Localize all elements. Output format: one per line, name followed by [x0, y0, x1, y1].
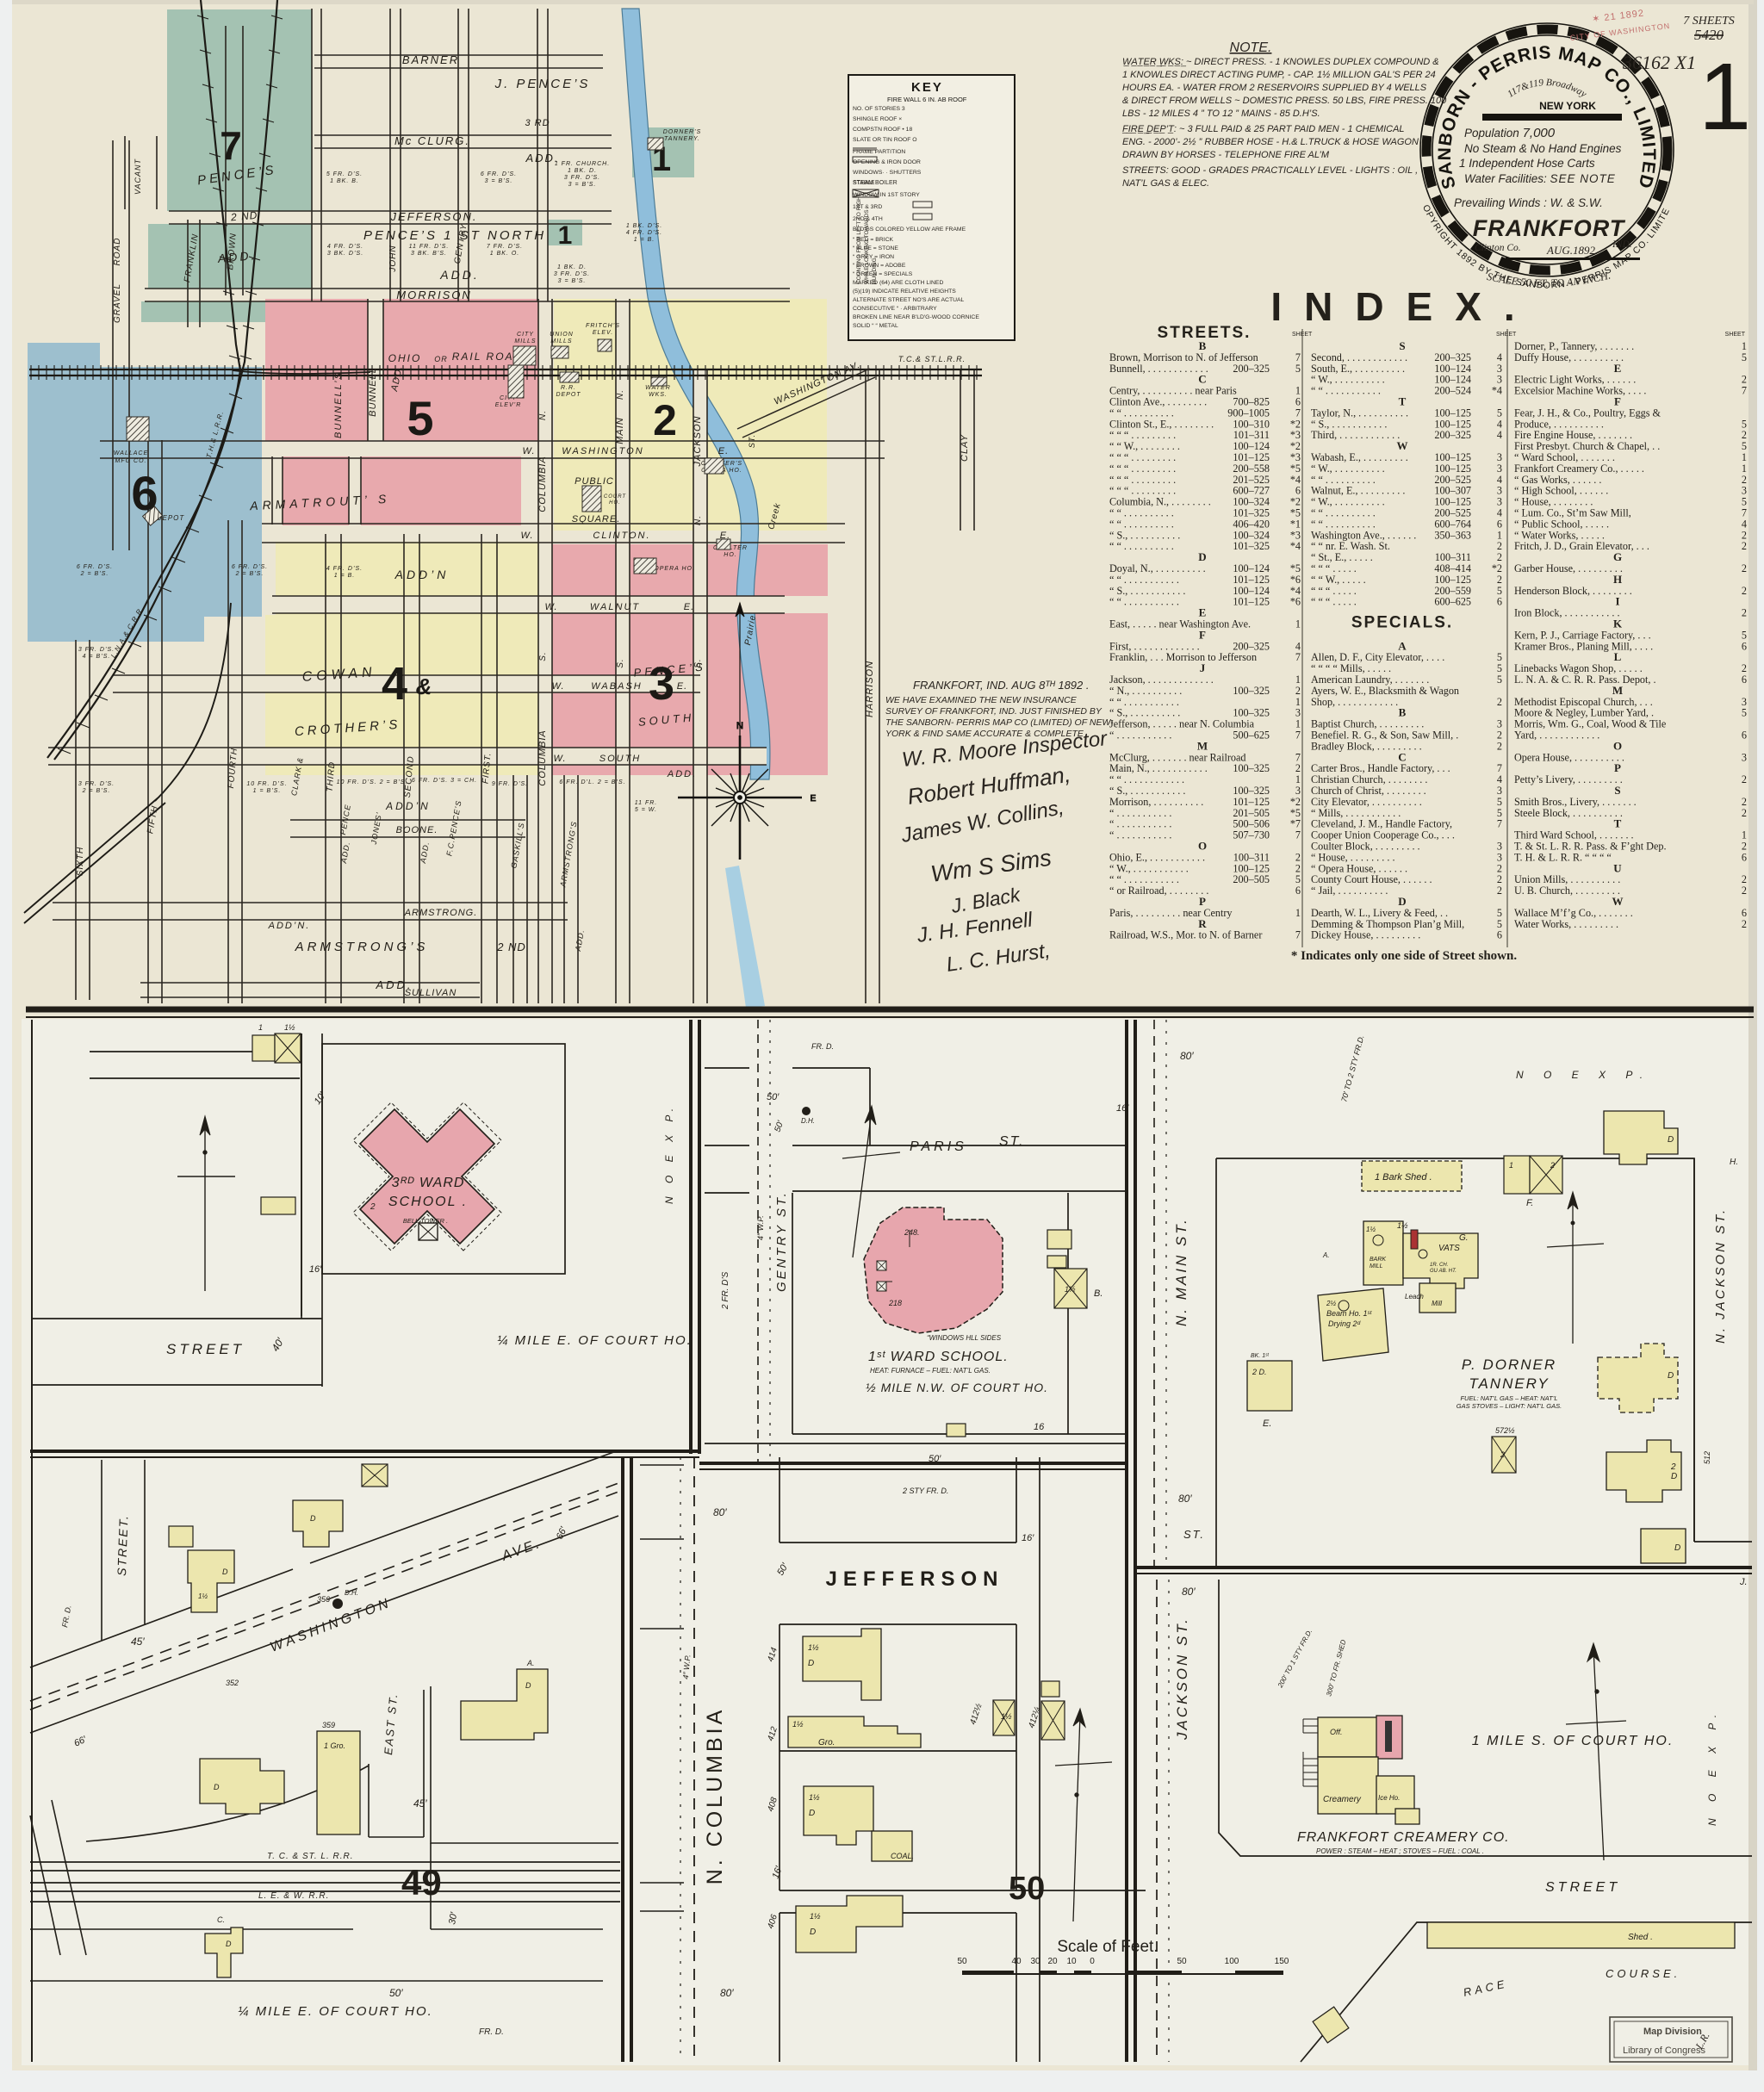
svg-text:“ S., . . . . . . . . . .: “ S., . . . . . . . . . . [1109, 707, 1180, 719]
svg-text:218: 218 [888, 1299, 902, 1307]
svg-text:STEAM BOILER: STEAM BOILER [853, 180, 898, 186]
svg-text:WINDOWS· · SHUTTERS: WINDOWS· · SHUTTERS [853, 170, 922, 176]
svg-text:ROAD: ROAD [113, 238, 122, 266]
svg-text:ADD.: ADD. [439, 268, 479, 282]
svg-text:100–125: 100–125 [1434, 418, 1471, 430]
svg-text:T.C.& ST.L.R.R.: T.C.& ST.L.R.R. [898, 355, 966, 363]
svg-text:E.: E. [684, 602, 694, 612]
svg-text:36162 X1: 36162 X1 [1622, 52, 1696, 73]
svg-text:5: 5 [1497, 907, 1502, 919]
svg-text:4 FR. D’S.: 4 FR. D’S. [626, 230, 662, 236]
svg-text:16: 16 [1034, 1422, 1045, 1432]
svg-text:DRAWN BY HORSES - TELEPHONE FI: DRAWN BY HORSES - TELEPHONE FIRE AL’M [1122, 150, 1330, 160]
svg-text:T: T [1399, 395, 1407, 408]
svg-text:1½: 1½ [808, 1643, 819, 1652]
svg-text:100–124: 100–124 [1233, 585, 1270, 597]
svg-text:1 BK. D.: 1 BK. D. [557, 264, 587, 270]
svg-text:1 Bark Shed .: 1 Bark Shed . [1375, 1172, 1432, 1183]
svg-text:3: 3 [1497, 363, 1502, 375]
svg-text:F.: F. [1526, 1198, 1533, 1208]
svg-text:101–125: 101–125 [1233, 574, 1270, 586]
svg-text:B: B [1199, 339, 1207, 352]
svg-text:VATS: VATS [1438, 1244, 1460, 1253]
svg-text:N. COLUMBIA: N. COLUMBIA [703, 1707, 727, 1885]
svg-text:*2: *2 [1290, 418, 1301, 430]
svg-text:L. N. A. & C. R. R. Pass. Depo: L. N. A. & C. R. R. Pass. Depot, . [1514, 674, 1656, 686]
svg-text:150: 150 [1275, 1957, 1289, 1966]
svg-text:3ᴿᴰ WARD: 3ᴿᴰ WARD [392, 1176, 465, 1190]
svg-text:1: 1 [1295, 385, 1301, 397]
svg-text:D: D [226, 1940, 232, 1948]
svg-text:80′: 80′ [713, 1506, 727, 1518]
svg-text:*2: *2 [1290, 496, 1301, 508]
svg-text:J.: J. [1739, 1577, 1748, 1587]
svg-text:Iron Block, . . . . . . . . .: Iron Block, . . . . . . . . . . . [1514, 607, 1620, 619]
svg-text:3: 3 [1295, 785, 1301, 797]
svg-text:1½: 1½ [1366, 1226, 1376, 1233]
svg-text:WABASH: WABASH [591, 681, 642, 692]
svg-text:Map Division: Map Division [1643, 2027, 1702, 2037]
svg-text:“ “ . . . . . . . . . . .: “ “ . . . . . . . . . . . [1109, 696, 1179, 708]
svg-text:*3: *3 [1290, 429, 1301, 441]
svg-text:“ Mills, . . . . . . . . . .: “ Mills, . . . . . . . . . . . [1311, 807, 1401, 819]
svg-text:2: 2 [1742, 873, 1747, 885]
svg-text:Bunnell, . . . . . . . . . . .: Bunnell, . . . . . . . . . . . . [1109, 363, 1208, 375]
svg-text:U. B. Church, . . . . . . . .: U. B. Church, . . . . . . . . . [1514, 885, 1620, 897]
svg-text:2: 2 [1742, 885, 1747, 897]
svg-text:“ Water Works, . . . . .: “ Water Works, . . . . . [1514, 529, 1605, 541]
svg-text:&: & [416, 674, 432, 699]
svg-text:Yard, . . . . . . . . . . . .: Yard, . . . . . . . . . . . . [1514, 729, 1599, 742]
svg-text:2: 2 [1742, 585, 1747, 597]
svg-text:100–125: 100–125 [1434, 451, 1471, 463]
svg-text:7: 7 [1497, 762, 1502, 774]
svg-text:Dearth, W. L., Livery & Feed,: Dearth, W. L., Livery & Feed, . . [1311, 907, 1448, 919]
svg-text:200–558: 200–558 [1233, 462, 1270, 475]
svg-text:N.: N. [538, 410, 548, 420]
svg-text:2: 2 [1742, 429, 1747, 441]
svg-text:1: 1 [558, 221, 573, 250]
svg-text:MORRISON: MORRISON [396, 289, 472, 301]
svg-text:7: 7 [220, 123, 242, 168]
svg-text:SPECIALS.: SPECIALS. [1351, 614, 1453, 632]
svg-text:101–325: 101–325 [1233, 507, 1270, 519]
svg-text:7: 7 [1295, 351, 1301, 363]
svg-text:1: 1 [258, 1023, 263, 1032]
svg-text:5: 5 [1497, 651, 1502, 663]
svg-text:359: 359 [322, 1721, 335, 1729]
svg-text:N. MAIN ST.: N. MAIN ST. [1173, 1217, 1189, 1326]
svg-text:3: 3 [1742, 696, 1747, 708]
svg-text:100–125: 100–125 [1434, 407, 1471, 419]
svg-text:80′: 80′ [1180, 1050, 1194, 1062]
svg-text:“ S., . . . . . . . . . . .: “ S., . . . . . . . . . . . [1311, 418, 1387, 430]
svg-text:1½: 1½ [198, 1592, 208, 1600]
svg-text:Methodist Episcopal Church, .: Methodist Episcopal Church, . . . [1514, 696, 1653, 708]
svg-text:IND.: IND. [1612, 239, 1632, 250]
svg-text:100–325: 100–325 [1233, 707, 1270, 719]
svg-text:S.: S. [538, 651, 548, 661]
svg-text:Morris, Wm. G., Coal, Wood & T: Morris, Wm. G., Coal, Wood & Tile [1514, 718, 1666, 730]
svg-text:McClurg, . . . . . . . near Ra: McClurg, . . . . . . . near Railroad [1109, 751, 1246, 763]
svg-text:COUNTING FROM LEFT TO RIGHT: COUNTING FROM LEFT TO RIGHT [856, 193, 862, 284]
svg-text:Kern, P. J., Carriage Factory,: Kern, P. J., Carriage Factory, . . . [1514, 629, 1651, 641]
svg-text:2: 2 [1742, 796, 1747, 808]
svg-text:INDEX.: INDEX. [1270, 284, 1537, 329]
svg-text:ARMSTRONG.: ARMSTRONG. [404, 908, 478, 918]
svg-text:5 = W.: 5 = W. [635, 807, 657, 813]
svg-text:E: E [811, 794, 817, 804]
svg-text:SIXTH: SIXTH [76, 847, 85, 876]
svg-text:2: 2 [653, 396, 677, 444]
svg-text:J: J [1200, 661, 1206, 674]
svg-text:3: 3 [1742, 751, 1747, 763]
svg-text:49: 49 [401, 1862, 442, 1903]
svg-text:6: 6 [1742, 640, 1747, 652]
svg-text:1½: 1½ [809, 1793, 820, 1802]
svg-text:*1: *1 [1290, 518, 1301, 530]
svg-text:CLINTON.: CLINTON. [593, 531, 650, 541]
svg-text:“ “ “ . . . . . . . .: “ “ “ . . . . . . . . . [1109, 451, 1176, 463]
svg-text:P: P [1614, 761, 1621, 774]
svg-text:5: 5 [1742, 440, 1747, 452]
svg-text:ADD’N: ADD’N [394, 568, 450, 581]
svg-text:4: 4 [1497, 418, 1502, 430]
svg-text:1 = B’S.: 1 = B’S. [253, 788, 282, 794]
svg-text:P: P [1199, 895, 1206, 908]
svg-text:100–124: 100–124 [1233, 562, 1270, 574]
svg-text:“ Opera House, . . . . . .: “ Opera House, . . . . . . [1311, 862, 1407, 874]
svg-text:4 FR. D’S.: 4 FR. D’S. [326, 566, 363, 572]
svg-text:500–625: 500–625 [1233, 729, 1270, 742]
svg-text:COMPSTN ROOF • 18: COMPSTN ROOF • 18 [853, 127, 912, 133]
svg-text:Leach: Leach [1405, 1293, 1424, 1301]
svg-text:572½: 572½ [1495, 1426, 1515, 1435]
svg-text:“ “ “ . . . . .: “ “ “ . . . . . [1311, 562, 1357, 574]
svg-text:FR. D.: FR. D. [811, 1042, 834, 1051]
svg-text:4: 4 [1497, 429, 1502, 441]
svg-text:“ S., . . . . . . . . . . .: “ S., . . . . . . . . . . . [1109, 585, 1185, 597]
svg-text:1: 1 [1742, 340, 1747, 352]
svg-text:2 FR. D’S: 2 FR. D’S [721, 1271, 730, 1310]
svg-text:2: 2 [1497, 551, 1502, 563]
svg-text:“ “ “ . . . . . . . .: “ “ “ . . . . . . . . . [1109, 474, 1176, 486]
svg-text:3: 3 [1742, 485, 1747, 497]
svg-text:W.: W. [553, 754, 566, 764]
svg-text:ST.: ST. [748, 434, 756, 448]
svg-text:2: 2 [1742, 562, 1747, 574]
svg-text:6 FR. D’L. 2 = B’S.: 6 FR. D’L. 2 = B’S. [559, 779, 625, 785]
svg-text:3: 3 [1497, 841, 1502, 853]
svg-text:“ . . . . . . . . . . .: “ . . . . . . . . . . . [1109, 818, 1171, 830]
svg-text:1R. CH.: 1R. CH. [1430, 1263, 1448, 1268]
svg-text:2 = B’S.: 2 = B’S. [80, 571, 109, 577]
svg-text:Wabash, E., . . . . . . . . .: Wabash, E., . . . . . . . . . [1311, 451, 1408, 463]
svg-text:HARRISON: HARRISON [865, 661, 875, 717]
svg-text:JOHN: JOHN [388, 245, 398, 272]
svg-text:“ “ . . . . . . . . . .: “ “ . . . . . . . . . . [1109, 518, 1174, 530]
svg-text:Church of Christ, . . . . . .: Church of Christ, . . . . . . . . [1311, 785, 1426, 797]
svg-text:Henderson Block, . . . . . . .: Henderson Block, . . . . . . . . [1514, 585, 1632, 597]
svg-text:500–506: 500–506 [1233, 818, 1270, 830]
svg-text:2: 2 [1497, 862, 1502, 874]
svg-text:N O E X P.: N O E X P. [663, 1103, 675, 1204]
svg-text:2: 2 [1742, 773, 1747, 785]
svg-text:COURT: COURT [604, 494, 627, 500]
svg-text:W.: W. [522, 446, 535, 456]
svg-text:ADD’N.: ADD’N. [268, 921, 311, 931]
svg-text:MILLS: MILLS [550, 338, 572, 345]
svg-text:BOONE.: BOONE. [396, 825, 438, 835]
svg-text:5: 5 [1497, 662, 1502, 674]
svg-text:5: 5 [1497, 674, 1502, 686]
svg-text:ELEV.: ELEV. [593, 330, 613, 336]
svg-text:STREET.: STREET. [115, 1514, 130, 1576]
svg-text:AUG.1892.: AUG.1892. [1546, 244, 1598, 257]
svg-text:7: 7 [1295, 729, 1301, 742]
svg-text:T. & St. L. R. R. Pass. & F’gh: T. & St. L. R. R. Pass. & F’ght Dep. [1514, 841, 1667, 853]
svg-text:WALLACE: WALLACE [114, 450, 148, 456]
svg-text:200–525: 200–525 [1434, 507, 1471, 519]
svg-text:“ Ward School, . . . . . . .: “ Ward School, . . . . . . . [1514, 451, 1615, 463]
svg-text:“ N., . . . . . . . . . .: “ N., . . . . . . . . . . [1109, 685, 1182, 697]
svg-text:E.: E. [677, 681, 687, 692]
svg-text:6: 6 [1742, 907, 1747, 919]
svg-text:First Presbyt. Church & Chapel: First Presbyt. Church & Chapel, . . [1514, 440, 1660, 452]
svg-text:2: 2 [370, 1202, 376, 1212]
svg-text:200–525: 200–525 [1434, 474, 1471, 486]
svg-text:100–325: 100–325 [1233, 685, 1270, 697]
svg-text:Steele Block, . . . . . . . .: Steele Block, . . . . . . . . . . [1514, 807, 1623, 819]
svg-text:11 FR.: 11 FR. [635, 800, 658, 806]
svg-text:7: 7 [1295, 751, 1301, 763]
svg-text:A.: A. [526, 1659, 535, 1667]
svg-text:A: A [1398, 639, 1407, 652]
svg-text:O: O [1198, 840, 1207, 853]
svg-text:Cooper Union Cooperage Co., .: Cooper Union Cooperage Co., . . . [1311, 829, 1455, 841]
svg-text:Petty’s Livery, . . . . . . .: Petty’s Livery, . . . . . . . . . [1514, 773, 1623, 785]
svg-text:L: L [1614, 650, 1622, 663]
svg-text:6 FR. D’S.: 6 FR. D’S. [77, 564, 113, 570]
svg-text:40: 40 [1011, 1957, 1022, 1966]
svg-text:“ . . . . . . . . . . .: “ . . . . . . . . . . . [1109, 729, 1171, 742]
svg-text:50′: 50′ [767, 1092, 780, 1102]
svg-text:11 FR. D’S.: 11 FR. D’S. [409, 244, 450, 250]
svg-text:¼ MILE E. OF COURT HO.: ¼ MILE E. OF COURT HO. [238, 2004, 433, 2019]
svg-text:PENCE’S 1 ST NORTH: PENCE’S 1 ST NORTH [363, 228, 546, 243]
svg-text:THE SANBORN- PERRIS MAP CO (LI: THE SANBORN- PERRIS MAP CO (LIMITED) OF … [885, 717, 1114, 728]
svg-text:201–505: 201–505 [1233, 807, 1270, 819]
svg-text:80′: 80′ [720, 1987, 734, 1999]
svg-text:*6: *6 [1290, 596, 1301, 608]
svg-text:512: 512 [1703, 1451, 1711, 1464]
svg-text:“ “ . . . . . . . . . . .: “ “ . . . . . . . . . . . [1109, 596, 1179, 608]
svg-text:HOURS EA. - WATER FROM 2 RESE: HOURS EA. - WATER FROM 2 RESERVOIRS SUPP… [1122, 83, 1427, 93]
svg-text:“ High School, . . . . .: “ High School, . . . . . . [1514, 485, 1608, 497]
svg-text:*2: *2 [1492, 562, 1502, 574]
svg-text:“ “ . . . . . . . . . .: “ “ . . . . . . . . . . [1109, 407, 1174, 419]
svg-text:4″ W.P.: 4″ W.P. [756, 1215, 765, 1240]
svg-text:Franklin, . . . Morrison to Je: Franklin, . . . Morrison to Jefferson [1109, 651, 1257, 663]
svg-text:*4: *4 [1290, 474, 1301, 486]
svg-text:1½: 1½ [792, 1720, 804, 1729]
svg-text:Water Works, . . . . . . . . .: Water Works, . . . . . . . . . [1514, 918, 1618, 930]
svg-text:5: 5 [1742, 707, 1747, 719]
svg-text:Cleveland, J. M., Handle Facto: Cleveland, J. M., Handle Factory, [1311, 818, 1452, 830]
svg-text:N O E X P.: N O E X P. [1706, 1708, 1718, 1826]
svg-text:NAT’L GAS & ELEC.: NAT’L GAS & ELEC. [1122, 178, 1209, 189]
svg-text:3: 3 [1497, 718, 1502, 730]
svg-text:* Indicates only one side of S: * Indicates only one side of Street show… [1291, 949, 1517, 963]
svg-text:101–125: 101–125 [1233, 796, 1270, 808]
svg-text:U: U [1613, 861, 1622, 874]
svg-text:F: F [1614, 395, 1621, 408]
svg-text:“ “ “ . . . . .: “ “ “ . . . . . [1311, 596, 1357, 608]
svg-text:50: 50 [1177, 1957, 1187, 1966]
svg-text:101–125: 101–125 [1233, 451, 1270, 463]
svg-text:100–125: 100–125 [1434, 496, 1471, 508]
svg-text:R: R [1198, 917, 1207, 930]
svg-text:“ “ . . . . . . . . . . . .: “ “ . . . . . . . . . . . . [1109, 773, 1184, 785]
svg-text:C.: C. [217, 1915, 225, 1924]
svg-text:1 = B.: 1 = B. [334, 573, 355, 579]
svg-text:UNION: UNION [550, 332, 574, 338]
svg-text:45′: 45′ [413, 1797, 427, 1810]
svg-text:“ S., . . . . . . . . . . .: “ S., . . . . . . . . . . . [1109, 785, 1185, 797]
svg-text:Fritch, J. D., Grain Elevator,: Fritch, J. D., Grain Elevator, . . . [1514, 540, 1649, 552]
svg-text:*4: *4 [1290, 585, 1301, 597]
svg-text:NO. OF STORIES 3: NO. OF STORIES 3 [853, 106, 905, 112]
svg-text:6: 6 [1295, 885, 1301, 897]
svg-text:1: 1 [1295, 718, 1301, 730]
svg-text:“ W., . . . . . . . . . . .: “ W., . . . . . . . . . . . [1109, 862, 1189, 874]
svg-text:100–310: 100–310 [1233, 418, 1270, 430]
svg-text:Wallace M’f’g Co., . . . . . .: Wallace M’f’g Co., . . . . . . . [1514, 907, 1633, 919]
svg-text:Moore & Negley, Lumber Yard, .: Moore & Negley, Lumber Yard, . [1514, 707, 1654, 719]
svg-text:Beam Ho. 1ˢᵗ: Beam Ho. 1ˢᵗ [1326, 1309, 1372, 1318]
svg-text:200–325: 200–325 [1233, 640, 1270, 652]
svg-text:FIRE WALL 6 IN. AB ROOF: FIRE WALL 6 IN. AB ROOF [887, 96, 967, 103]
svg-text:City Elevator, . . . . . . . .: City Elevator, . . . . . . . . . . [1311, 796, 1422, 808]
svg-text:100–124: 100–124 [1233, 440, 1270, 452]
svg-text:“ “ . . . . . . . . . . .: “ “ . . . . . . . . . . . [1109, 574, 1179, 586]
svg-text:4: 4 [1497, 351, 1502, 363]
svg-text:9 FR. D’S.: 9 FR. D’S. [492, 781, 528, 787]
svg-text:*4: *4 [1492, 385, 1502, 397]
svg-text:RAIL ROAD: RAIL ROAD [452, 351, 523, 363]
svg-text:1: 1 [1295, 907, 1301, 919]
svg-text:BUNNELL: BUNNELL [368, 367, 378, 417]
svg-text:6: 6 [1497, 929, 1502, 941]
svg-text:HO.: HO. [724, 552, 736, 558]
svg-text:3: 3 [1497, 485, 1502, 497]
svg-text:6: 6 [1295, 396, 1301, 408]
svg-text:Excelsior Machine Works, . . .: Excelsior Machine Works, . . . . [1514, 385, 1646, 397]
svg-text:350–363: 350–363 [1434, 529, 1471, 541]
svg-text:4: 4 [382, 658, 407, 710]
svg-text:100–124: 100–124 [1434, 374, 1471, 386]
svg-text:“ Lum. Co., St’m Saw Mill: “ Lum. Co., St’m Saw Mill, [1514, 507, 1631, 519]
svg-text:“ “ . . . . . . . . . .: “ “ . . . . . . . . . . [1109, 540, 1174, 552]
svg-text:ST.: ST. [999, 1134, 1024, 1149]
svg-text:D: D [810, 1927, 816, 1937]
svg-text:3 FR. D’S.: 3 FR. D’S. [564, 175, 600, 181]
svg-text:VACANT: VACANT [134, 158, 142, 195]
svg-text:100–311: 100–311 [1233, 851, 1270, 863]
svg-text:“ “ W., . . . . . . . .: “ “ W., . . . . . . . . [1109, 440, 1180, 452]
svg-text:E: E [1199, 606, 1207, 619]
svg-text:FRANKFORT: FRANKFORT [1473, 215, 1626, 241]
svg-text:Mc CLURG.: Mc CLURG. [394, 134, 470, 147]
svg-text:Drying 2ᵈ: Drying 2ᵈ [1328, 1319, 1362, 1328]
svg-text:1 FR. CHURCH.: 1 FR. CHURCH. [555, 161, 610, 167]
svg-text:Creamery: Creamery [1323, 1795, 1362, 1804]
svg-text:100–325: 100–325 [1233, 785, 1270, 797]
svg-text:5: 5 [1497, 918, 1502, 930]
svg-text:200–325: 200–325 [1434, 429, 1471, 441]
svg-text:CLAY: CLAY [960, 434, 970, 462]
svg-text:FUEL: NAT’L GAS – HEAT: NAT’L: FUEL: NAT’L GAS – HEAT: NAT’L [1460, 1394, 1557, 1402]
svg-text:First, . . . . . . . . . . . .: First, . . . . . . . . . . . . . [1109, 640, 1200, 652]
svg-text:Prevailing Winds : W. & S.W.: Prevailing Winds : W. & S.W. [1454, 196, 1603, 209]
svg-text:1: 1 [1295, 674, 1301, 686]
svg-text:COURSE.: COURSE. [1606, 1967, 1680, 1980]
svg-text:*3: *3 [1290, 451, 1301, 463]
svg-text:4: 4 [1497, 773, 1502, 785]
svg-text:K: K [1613, 618, 1623, 630]
svg-text:KEY: KEY [911, 80, 943, 95]
svg-text:“ Jail, . . . . . . . . .: “ Jail, . . . . . . . . . . [1311, 885, 1388, 897]
svg-text:SQUARE.: SQUARE. [572, 514, 621, 525]
svg-text:1 BK. O.: 1 BK. O. [490, 251, 519, 257]
svg-text:“ Public School, . . . .: “ Public School, . . . . . [1514, 518, 1609, 530]
svg-text:80′: 80′ [1182, 1586, 1196, 1598]
svg-text:“ St., E., . . . . .: “ St., E., . . . . . [1311, 551, 1373, 563]
svg-text:3: 3 [1497, 374, 1502, 386]
svg-text:5: 5 [1742, 629, 1747, 641]
svg-text:900–1005: 900–1005 [1227, 407, 1270, 419]
svg-text:4 = B’S.: 4 = B’S. [83, 654, 111, 660]
svg-text:T. C. & ST. L. R.R.: T. C. & ST. L. R.R. [267, 1852, 354, 1861]
svg-text:3 FR. D’S.: 3 FR. D’S. [78, 781, 115, 787]
svg-text:“WINDOWS HLL SIDES: “WINDOWS HLL SIDES [927, 1334, 1002, 1342]
svg-text:Electric Light Works, . . . .: Electric Light Works, . . . . . . [1514, 374, 1636, 386]
svg-text:2: 2 [1742, 529, 1747, 541]
svg-text:2 ND: 2 ND [229, 209, 258, 224]
svg-text:“ Gas Works, . . . . . .: “ Gas Works, . . . . . . [1514, 474, 1601, 486]
svg-text:American Laundry, . . . . . .: American Laundry, . . . . . . . [1311, 674, 1429, 686]
svg-text:NEW YORK: NEW YORK [1539, 100, 1596, 112]
svg-text:T: T [1614, 817, 1622, 830]
svg-text:200–325: 200–325 [1434, 351, 1471, 363]
svg-text:1 BK. B.: 1 BK. B. [330, 178, 359, 184]
svg-text:200–505: 200–505 [1233, 873, 1270, 885]
svg-text:POWER : STEAM – HEAT ; STOVES: POWER : STEAM – HEAT ; STOVES – FUEL : C… [1316, 1847, 1484, 1855]
svg-text:N. JACKSON ST.: N. JACKSON ST. [1713, 1207, 1728, 1344]
svg-text:1 Independent Hose Carts: 1 Independent Hose Carts [1459, 157, 1595, 170]
svg-text:Fire Engine House, . . . . . .: Fire Engine House, . . . . . . . [1514, 429, 1632, 441]
svg-text:2: 2 [1742, 374, 1747, 386]
svg-text:ADD.: ADD. [667, 769, 697, 779]
svg-text:Gro.: Gro. [818, 1738, 835, 1747]
svg-text:100–125: 100–125 [1434, 462, 1471, 475]
svg-text:Duffy House, . . . . . . . . .: Duffy House, . . . . . . . . . . [1514, 351, 1624, 363]
svg-text:1: 1 [1742, 829, 1747, 841]
svg-text:NOTE.: NOTE. [1230, 40, 1272, 55]
svg-text:L. E. & W. R.R.: L. E. & W. R.R. [258, 1891, 329, 1901]
svg-text:Scale of Feet.: Scale of Feet. [1057, 1938, 1158, 1956]
svg-text:Clinton Ave., . . . . . . . .: Clinton Ave., . . . . . . . . [1109, 396, 1207, 408]
